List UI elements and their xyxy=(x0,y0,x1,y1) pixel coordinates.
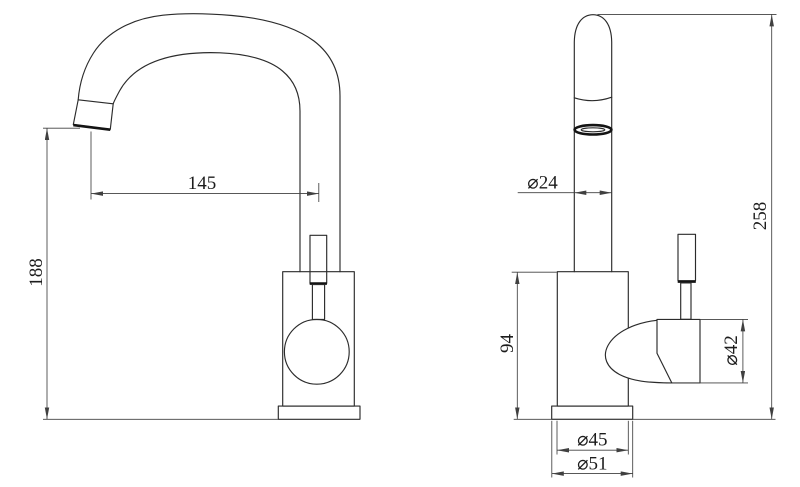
faucet-front-view: ⌀24 94 258 ⌀42 ⌀45 xyxy=(497,14,777,477)
dim-label-reach-145: 145 xyxy=(188,173,217,194)
dim-label-tube-dia-24: ⌀24 xyxy=(527,173,558,194)
faucet-body-side xyxy=(283,272,355,406)
faucet-drawing-canvas: 188 145 ⌀24 xyxy=(0,0,800,487)
aerator-ring-front xyxy=(575,125,612,134)
lever-stem-front xyxy=(681,283,691,319)
lever-stem-side xyxy=(312,285,324,320)
lever-grip-side xyxy=(310,235,327,283)
dimension-tube-dia-24: ⌀24 xyxy=(518,173,612,194)
dim-label-body-dia-45: ⌀45 xyxy=(577,429,607,450)
technical-drawing-sheet: 188 145 ⌀24 xyxy=(0,0,800,487)
aerator-ring-inner xyxy=(581,128,605,132)
dim-label-total-height-258: 258 xyxy=(750,202,771,231)
spout-tube-front xyxy=(574,15,611,272)
dim-label-height-188: 188 xyxy=(26,258,47,287)
base-flange-front xyxy=(552,406,633,419)
base-flange-side xyxy=(278,406,360,419)
handle-ball-joint xyxy=(284,319,349,384)
dimension-height-188: 188 xyxy=(26,128,278,419)
lever-grip-front xyxy=(678,234,696,280)
dimension-body-height-94: 94 xyxy=(497,272,557,419)
dim-label-base-dia-51: ⌀51 xyxy=(577,454,607,475)
dim-label-body-height-94: 94 xyxy=(497,334,518,354)
aerator-outlet-edge xyxy=(73,125,110,130)
spout-inner-curve xyxy=(113,53,300,272)
tube-joint-seam xyxy=(574,97,611,100)
dimension-reach-145: 145 xyxy=(91,132,319,203)
faucet-side-view: 188 145 xyxy=(26,14,360,420)
dim-label-handle-dia-42: ⌀42 xyxy=(721,335,742,365)
dimension-body-dia-45: ⌀45 xyxy=(557,421,628,455)
